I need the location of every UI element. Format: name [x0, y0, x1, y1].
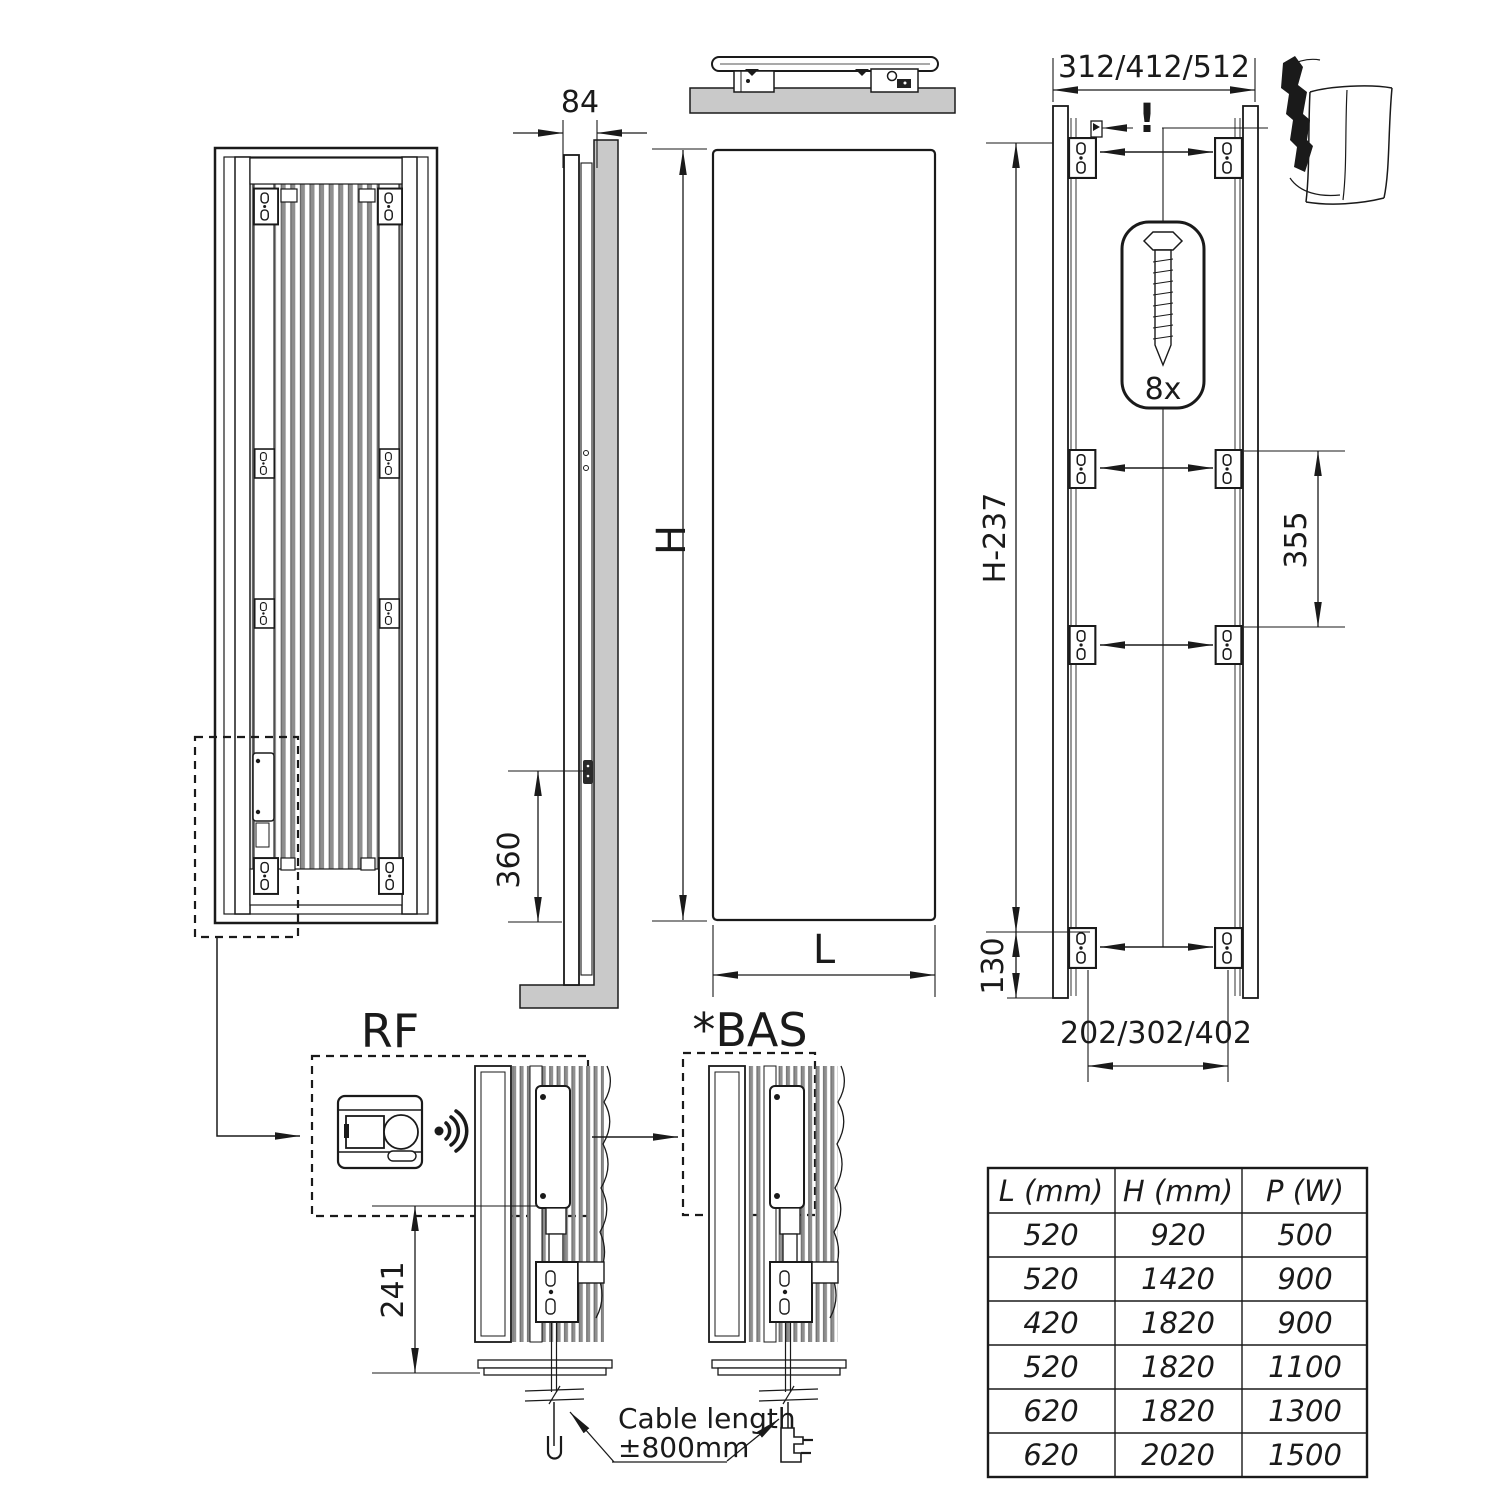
bas-control-detail: *BAS — [683, 1003, 846, 1462]
wall-bracket-layout-view: 312/412/512 ! — [976, 50, 1345, 1082]
dim-depth-label: 84 — [561, 85, 599, 120]
control-unit — [536, 1086, 570, 1208]
mounting-bracket-icon — [255, 599, 275, 628]
table-cell: 420 — [1023, 1306, 1078, 1340]
mounting-bracket-icon — [255, 449, 275, 478]
top-collector — [250, 158, 402, 184]
table-header-length: L (mm) — [999, 1174, 1104, 1208]
installation-drawing: 84 360 H L — [0, 0, 1500, 1500]
radiator-top-view — [690, 57, 955, 113]
thermostat-icon — [338, 1096, 422, 1168]
detail-leader-line — [217, 938, 300, 1136]
radiator-back-view — [195, 148, 437, 1136]
rf-label: RF — [361, 1004, 419, 1058]
radiator-front-panel-view: H L — [649, 149, 935, 997]
table-cell: 1820 — [1141, 1306, 1215, 1340]
front-panel — [713, 150, 935, 920]
mounting-bracket-icon — [380, 449, 400, 478]
dim-top-bracket-spacing-label: 312/412/512 — [1058, 50, 1250, 85]
table-header-height: H (mm) — [1123, 1174, 1233, 1208]
table-cell: 1820 — [1141, 1394, 1215, 1428]
table-cell: 1420 — [1141, 1262, 1215, 1296]
mounting-bracket-icon — [1216, 626, 1242, 664]
drawing-canvas: 84 360 H L — [0, 0, 1500, 1500]
table-cell: 620 — [1023, 1438, 1078, 1472]
wall-rail-left — [1053, 106, 1068, 998]
control-unit — [770, 1086, 804, 1208]
mounting-bracket-icon — [1070, 450, 1096, 488]
mounting-bracket-icon — [378, 189, 402, 225]
table-cell: 2020 — [1141, 1438, 1215, 1472]
cable-gland — [583, 760, 593, 784]
mounting-bracket-icon — [1069, 138, 1096, 178]
radiator-section-bas — [709, 1066, 846, 1375]
radiator-section-rf — [475, 1066, 612, 1375]
spec-table: L (mm) H (mm) P (W) 520 920 500 520 1420… — [988, 1168, 1367, 1477]
dim-bracket-frame-height-label: H-237 — [978, 493, 1013, 584]
table-cell: 520 — [1023, 1218, 1078, 1252]
mounting-rail-profile — [581, 163, 592, 975]
wall-hook-icon — [1281, 56, 1313, 172]
dim-mid-bracket-spacing-label: 355 — [1279, 511, 1314, 568]
power-cable-bas — [759, 1322, 818, 1462]
table-cell: 1500 — [1268, 1438, 1342, 1472]
radiator-profile — [564, 155, 579, 985]
mounting-bracket-icon — [380, 599, 400, 628]
mounting-bracket-icon — [379, 858, 403, 894]
terminal-block — [770, 1262, 812, 1322]
table-cell: 520 — [1023, 1262, 1078, 1296]
dim-control-unit-height-label: 241 — [376, 1261, 411, 1318]
cable-length-note: Cable length ±800mm — [570, 1402, 796, 1464]
table-cell: 500 — [1277, 1218, 1332, 1252]
table-cell: 1820 — [1141, 1350, 1215, 1384]
bracket-3d-detail — [1281, 56, 1392, 204]
dim-width-label: L — [813, 927, 836, 973]
mounting-bracket-icon — [1070, 626, 1096, 664]
dim-inlet-height-label: 360 — [492, 831, 527, 888]
mounting-bracket-icon — [1069, 928, 1096, 968]
frame-rail-right — [402, 157, 417, 914]
heating-channel-right — [379, 184, 399, 872]
mounting-bracket-icon — [254, 858, 278, 894]
table-cell: 1300 — [1268, 1394, 1342, 1428]
mounting-bracket-icon — [1215, 928, 1242, 968]
screw-quantity-label: 8x — [1145, 372, 1182, 407]
frame-rail-left — [235, 157, 250, 914]
bas-label: *BAS — [692, 1003, 807, 1057]
mounting-bracket-icon — [254, 189, 278, 225]
top-bracket-left — [734, 71, 774, 92]
table-cell: 900 — [1277, 1306, 1332, 1340]
warning-mark: ! — [1138, 96, 1156, 142]
wireless-signal-icon — [435, 1111, 467, 1151]
dim-height-label: H — [649, 525, 695, 555]
radiator-side-view: 84 360 — [492, 85, 647, 1008]
terminal-block — [536, 1262, 578, 1322]
table-cell: 520 — [1023, 1350, 1078, 1384]
mounting-bracket-icon — [1216, 450, 1242, 488]
rf-control-detail: RF — [312, 1004, 678, 1459]
control-unit — [253, 753, 274, 821]
table-cell: 920 — [1150, 1218, 1205, 1252]
mounting-bracket-icon — [1215, 138, 1242, 178]
dim-bottom-bracket-spacing-label: 202/302/402 — [1060, 1016, 1252, 1051]
wall-rail-right — [1243, 106, 1258, 998]
table-cell: 1100 — [1268, 1350, 1342, 1384]
dim-bottom-offset-label: 130 — [976, 937, 1011, 994]
table-cell: 620 — [1023, 1394, 1078, 1428]
table-header-power: P (W) — [1266, 1174, 1344, 1208]
table-cell: 900 — [1277, 1262, 1332, 1296]
